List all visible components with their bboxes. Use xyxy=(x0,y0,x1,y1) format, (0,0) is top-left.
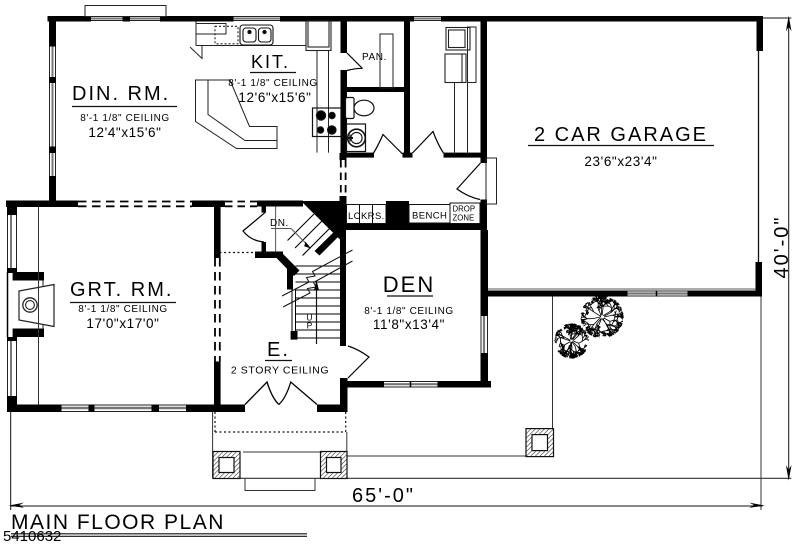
svg-text:8'-1 1/8" CEILING: 8'-1 1/8" CEILING xyxy=(364,306,454,317)
svg-text:8'-1 1/8" CEILING: 8'-1 1/8" CEILING xyxy=(228,78,318,89)
svg-text:E.: E. xyxy=(267,339,290,361)
svg-text:2 CAR GARAGE: 2 CAR GARAGE xyxy=(534,124,708,146)
svg-text:KIT.: KIT. xyxy=(251,52,290,72)
svg-text:23'6"x23'4": 23'6"x23'4" xyxy=(584,154,657,169)
svg-text:PAN.: PAN. xyxy=(362,52,387,63)
svg-text:11'8"x13'4": 11'8"x13'4" xyxy=(373,317,445,332)
svg-text:DIN. RM.: DIN. RM. xyxy=(72,83,170,105)
svg-text:P: P xyxy=(307,321,313,331)
svg-text:BENCH: BENCH xyxy=(412,211,447,222)
svg-text:LCKRS.: LCKRS. xyxy=(348,211,385,222)
svg-text:DN.: DN. xyxy=(270,218,289,229)
svg-text:DROP: DROP xyxy=(453,205,476,214)
svg-text:12'4"x15'6": 12'4"x15'6" xyxy=(88,125,161,140)
svg-text:ZONE: ZONE xyxy=(453,214,475,223)
svg-text:17'0"x17'0": 17'0"x17'0" xyxy=(86,316,159,331)
svg-text:8'-1 1/8" CEILING: 8'-1 1/8" CEILING xyxy=(78,304,168,315)
svg-text:DEN: DEN xyxy=(383,272,435,297)
svg-text:12'6"x15'6": 12'6"x15'6" xyxy=(238,90,311,105)
svg-text:40'-0": 40'-0" xyxy=(771,216,793,279)
svg-text:5410632: 5410632 xyxy=(3,528,61,545)
svg-text:8'-1 1/8" CEILING: 8'-1 1/8" CEILING xyxy=(80,113,170,124)
svg-text:GRT. RM.: GRT. RM. xyxy=(70,279,173,301)
svg-text:2 STORY CEILING: 2 STORY CEILING xyxy=(231,365,329,377)
svg-text:65'-0": 65'-0" xyxy=(352,485,415,507)
